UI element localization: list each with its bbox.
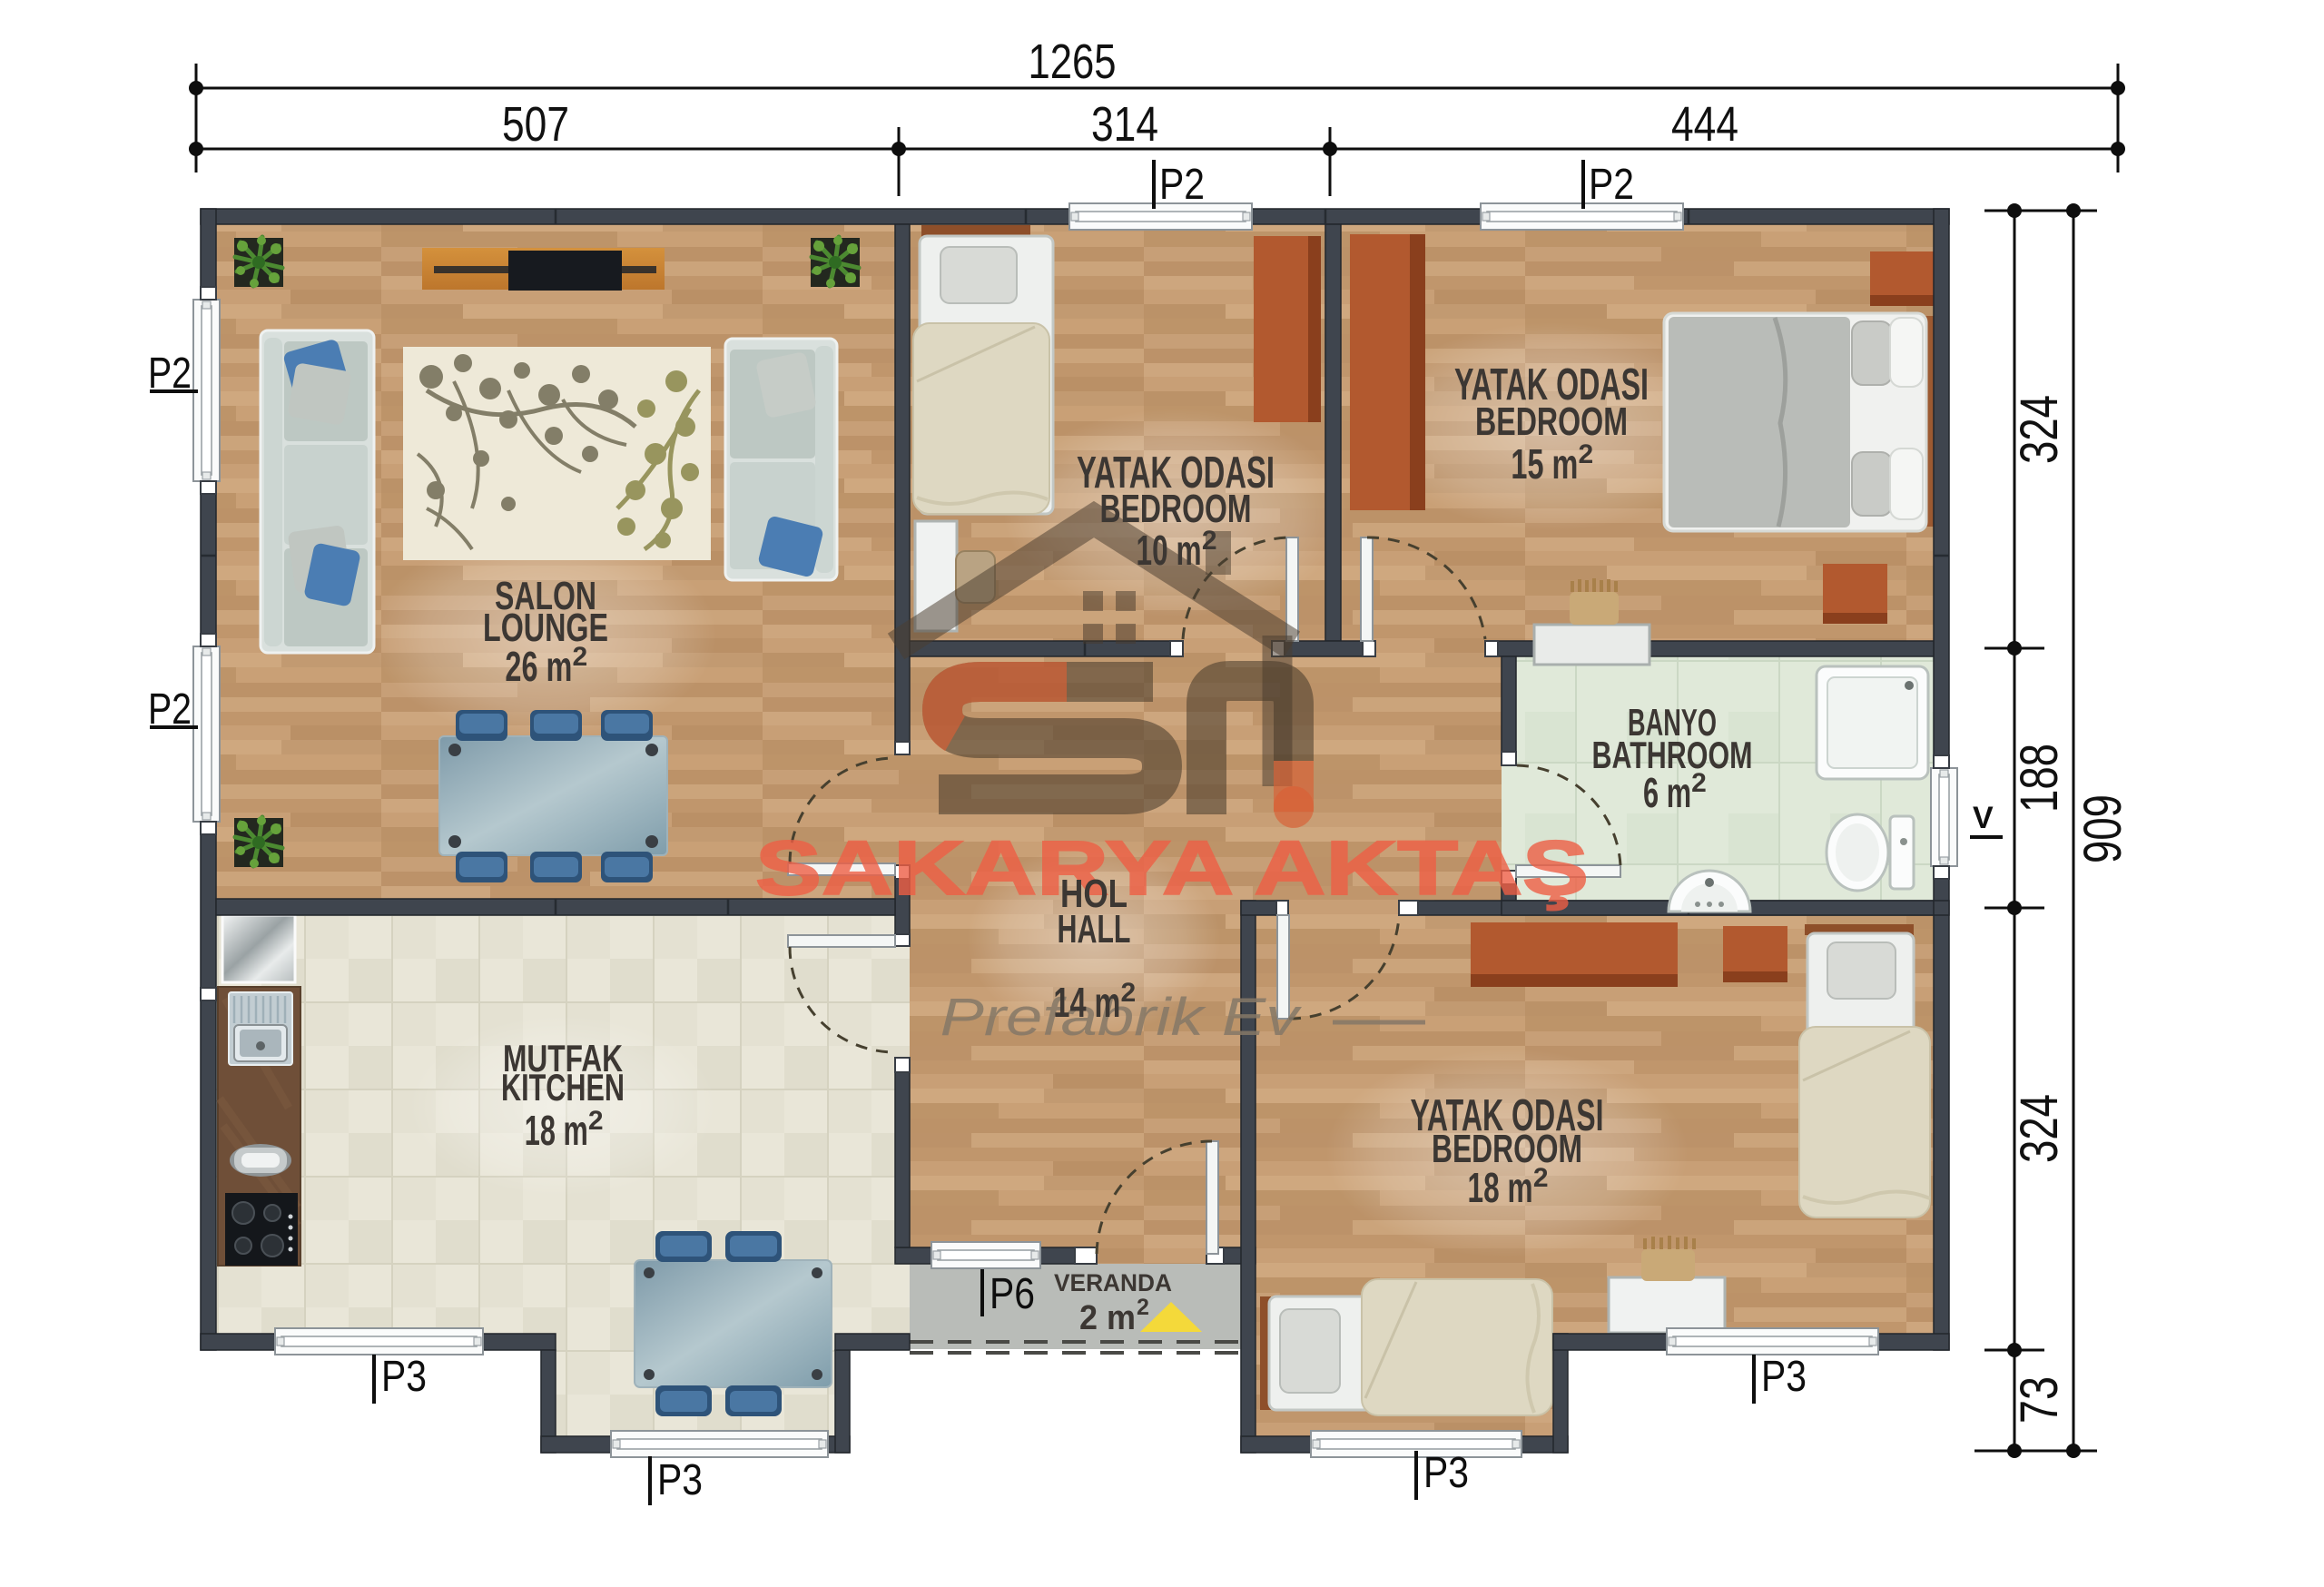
svg-text:10 m: 10 m: [1137, 527, 1202, 574]
svg-text:73: 73: [2010, 1376, 2069, 1424]
svg-text:P3: P3: [381, 1353, 427, 1401]
svg-text:2: 2: [1120, 978, 1136, 1008]
svg-text:P2: P2: [1589, 161, 1634, 209]
svg-text:2: 2: [1578, 439, 1593, 469]
svg-text:444: 444: [1671, 97, 1738, 152]
svg-text:188: 188: [2010, 744, 2069, 813]
svg-text:6 m: 6 m: [1643, 769, 1691, 816]
svg-text:18 m: 18 m: [1468, 1164, 1533, 1211]
svg-text:P2: P2: [1159, 161, 1205, 209]
svg-text:2: 2: [572, 642, 587, 672]
svg-text:VERANDA: VERANDA: [1054, 1269, 1172, 1296]
svg-text:507: 507: [502, 97, 569, 152]
svg-text:18 m: 18 m: [525, 1107, 588, 1154]
svg-text:26 m: 26 m: [505, 643, 572, 690]
svg-text:BEDROOM: BEDROOM: [1100, 487, 1252, 531]
svg-text:314: 314: [1091, 97, 1158, 152]
svg-text:P3: P3: [1761, 1353, 1807, 1401]
svg-text:324: 324: [2010, 1094, 2069, 1163]
svg-text:HALL: HALL: [1058, 907, 1131, 951]
svg-text:V: V: [1973, 801, 1994, 835]
svg-text:BEDROOM: BEDROOM: [1475, 399, 1628, 444]
svg-text:P6: P6: [990, 1270, 1035, 1318]
svg-text:2: 2: [1202, 526, 1217, 556]
svg-text:KITCHEN: KITCHEN: [501, 1066, 625, 1109]
svg-text:324: 324: [2010, 395, 2069, 464]
svg-text:2 m: 2 m: [1079, 1299, 1136, 1337]
svg-text:P3: P3: [1423, 1449, 1469, 1497]
svg-text:2: 2: [1533, 1163, 1549, 1193]
svg-text:15 m: 15 m: [1511, 440, 1578, 488]
svg-text:2: 2: [1691, 768, 1707, 798]
svg-text:2: 2: [1137, 1295, 1149, 1320]
svg-text:1265: 1265: [1029, 34, 1117, 89]
svg-text:909: 909: [2073, 794, 2132, 863]
svg-text:SAKARYA AKTAŞ: SAKARYA AKTAŞ: [755, 825, 1589, 911]
svg-text:2: 2: [588, 1106, 604, 1136]
svg-text:P3: P3: [657, 1456, 703, 1504]
svg-text:14 m: 14 m: [1053, 979, 1120, 1026]
